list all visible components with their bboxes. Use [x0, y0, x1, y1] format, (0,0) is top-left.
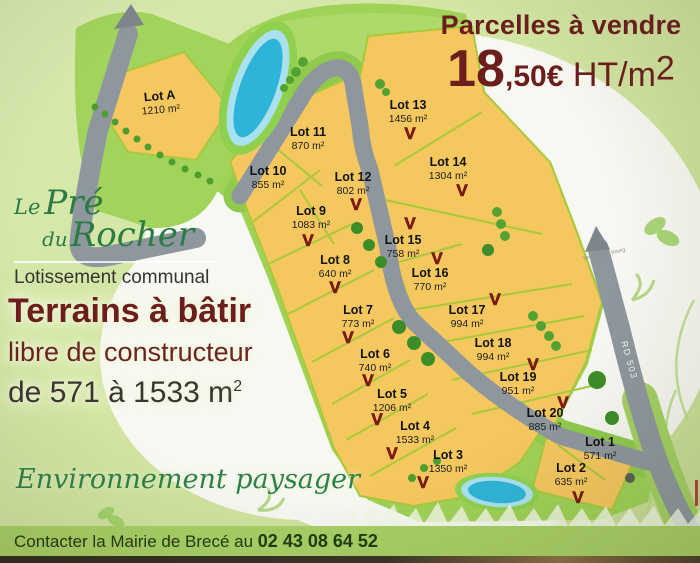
- maker-mark: [695, 480, 698, 506]
- lot-area: 994 m²: [451, 318, 484, 330]
- lot-name: Lot 16: [412, 266, 449, 280]
- lot-name: Lot 11: [290, 125, 326, 139]
- sale-sign: RD 503 Vers centre bourg: [0, 0, 700, 563]
- lot-area: 758 m²: [387, 248, 420, 260]
- price-sup: 2: [656, 50, 675, 88]
- lot-area: 1083 m²: [292, 219, 331, 231]
- lot-name: Lot 17: [449, 303, 486, 317]
- sold-marker-icon: V: [404, 124, 416, 143]
- environment-note: Environnement paysager: [16, 464, 360, 495]
- size-range: de 571 à 1533 m2: [8, 376, 253, 410]
- lot-area: 870 m²: [292, 140, 325, 152]
- sold-marker-icon: V: [417, 473, 429, 492]
- lot-name: Lot 18: [475, 336, 512, 350]
- price-int: 18: [447, 40, 505, 98]
- lot-name: Lot 9: [296, 204, 326, 218]
- price-header: Parcelles à vendre: [436, 10, 686, 41]
- lot-name: Lot 6: [360, 347, 390, 361]
- sold-marker-icon: V: [527, 355, 539, 374]
- contact-prefix: Contacter la Mairie de Brecé au: [14, 532, 258, 551]
- lot-name: Lot 15: [385, 233, 422, 247]
- sold-marker-icon: V: [302, 231, 314, 250]
- lot-label-18: Lot 18994 m²: [475, 336, 512, 363]
- lot-name: Lot 13: [390, 98, 427, 112]
- lot-name: Lot 4: [400, 419, 430, 433]
- headline-sub1: libre de constructeur: [8, 337, 253, 368]
- sold-marker-icon: V: [386, 444, 398, 463]
- lot-area: 951 m²: [502, 385, 535, 397]
- sold-marker-icon: V: [572, 488, 584, 507]
- price-amount: 18,50€ HT/m2: [436, 43, 686, 95]
- lot-name: Lot 3: [433, 448, 463, 462]
- lot-name: Lot 14: [430, 155, 467, 169]
- contact-text: Contacter la Mairie de Brecé au 02 43 08…: [14, 531, 378, 552]
- lot-area: 770 m²: [414, 281, 447, 293]
- headline-title: Terrains à bâtir: [8, 292, 253, 331]
- sold-marker-icon: V: [342, 328, 354, 347]
- lot-name: Lot 10: [250, 164, 287, 178]
- sold-marker-icon: V: [329, 278, 341, 297]
- price-block: Parcelles à vendre 18,50€ HT/m2: [436, 10, 686, 95]
- contact-strip: Contacter la Mairie de Brecé au 02 43 08…: [0, 526, 700, 556]
- price-cents: ,50€: [505, 60, 563, 93]
- sold-marker-icon: V: [431, 249, 443, 268]
- logo-du: du: [42, 227, 68, 251]
- lot-name: Lot 1: [585, 435, 615, 449]
- lot-area: 885 m²: [529, 421, 562, 433]
- price-unit: HT/m: [563, 56, 656, 94]
- lot-area: 994 m²: [477, 351, 510, 363]
- logo-subtitle: Lotissement communal: [14, 261, 214, 289]
- lot-label-10: Lot 10855 m²: [250, 164, 287, 191]
- lot-name: Lot 8: [320, 253, 350, 267]
- lot-area: 635 m²: [555, 476, 588, 488]
- lot-name: Lot 2: [556, 461, 586, 475]
- contact-phone: 02 43 08 64 52: [258, 531, 378, 551]
- sold-marker-icon: V: [489, 290, 501, 309]
- lot-label-a: Lot A1210 m²: [140, 87, 181, 117]
- sign-bottom-edge: [0, 556, 700, 563]
- lot-name: Lot 7: [343, 303, 373, 317]
- lot-area: 1533 m²: [396, 434, 435, 446]
- sold-marker-icon: V: [350, 195, 362, 214]
- lot-area: 571 m²: [584, 450, 617, 462]
- lot-name: Lot 5: [377, 387, 407, 401]
- logo-le: Le: [14, 195, 40, 219]
- sold-marker-icon: V: [362, 371, 374, 390]
- sold-marker-icon: V: [404, 214, 416, 233]
- sold-marker-icon: V: [371, 410, 383, 429]
- logo-rocher: Rocher: [71, 215, 194, 255]
- sold-marker-icon: V: [557, 393, 569, 412]
- lot-label-11: Lot 11870 m²: [290, 125, 326, 152]
- size-range-sup: 2: [233, 378, 242, 395]
- sold-marker-icon: V: [456, 181, 468, 200]
- lot-area: 1350 m²: [429, 463, 468, 475]
- lot-name: Lot A: [143, 88, 176, 105]
- logo-block: LePré duRocher Lotissement communal: [14, 183, 214, 289]
- lot-label-1: Lot 1571 m²: [584, 435, 617, 462]
- headline-block: Terrains à bâtir libre de constructeur d…: [8, 292, 253, 410]
- lot-name: Lot 12: [335, 170, 372, 184]
- lot-area: 855 m²: [252, 179, 285, 191]
